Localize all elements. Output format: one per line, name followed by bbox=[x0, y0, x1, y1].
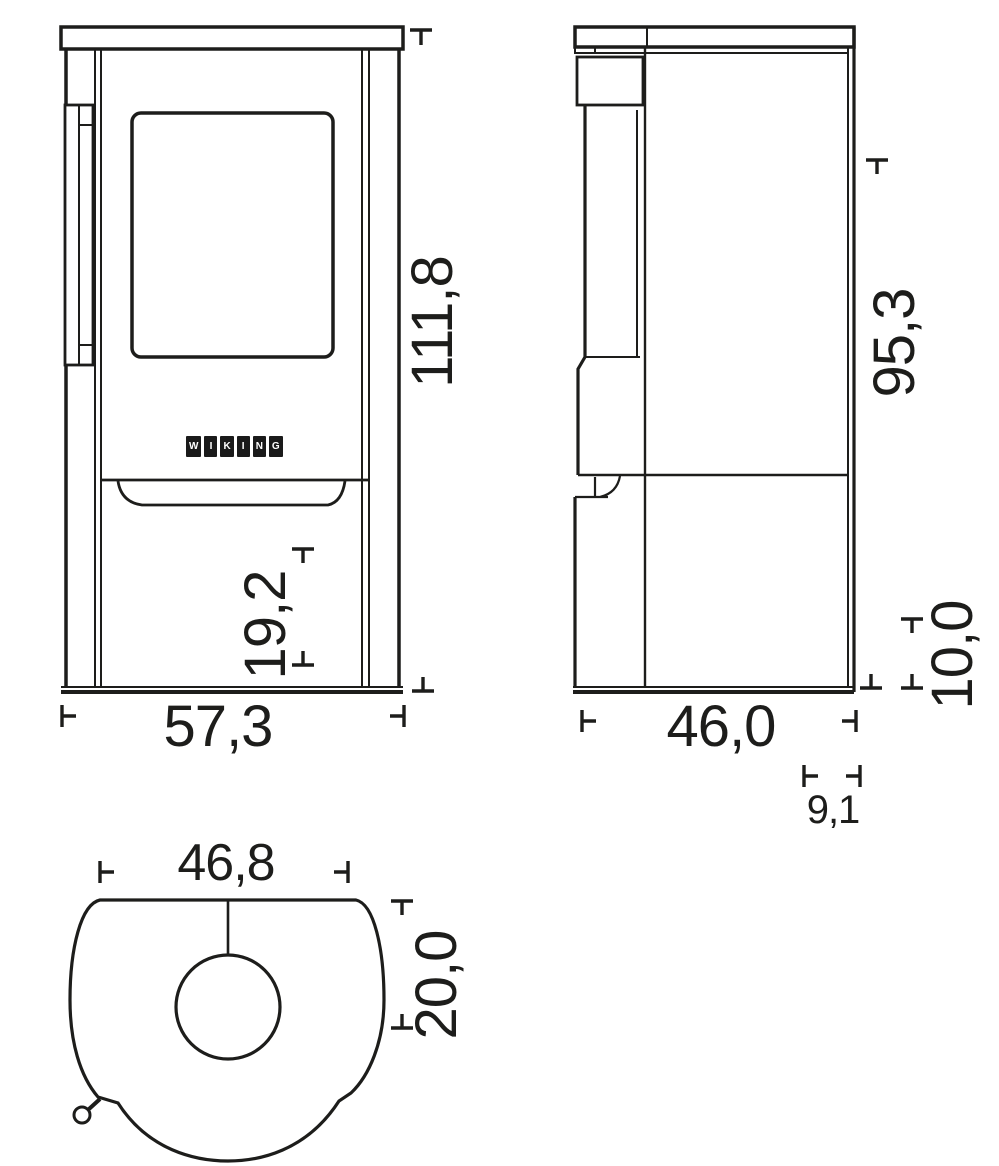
dimension-label-side-back-offset: 9,1 bbox=[807, 790, 860, 830]
wiking-logo: W I K I N G bbox=[186, 436, 283, 457]
front-top-plate bbox=[61, 27, 403, 49]
top-view-handle-stem bbox=[89, 1099, 100, 1109]
logo-letter: I bbox=[204, 436, 217, 457]
dimension-drawing-canvas: 111,8 57,3 19,2 95,3 46,0 10,0 9,1 46,8 … bbox=[0, 0, 999, 1166]
dimension-label-side-upper-height: 95,3 bbox=[866, 289, 924, 398]
dimension-label-top-flue-offset: 20,0 bbox=[408, 931, 466, 1040]
side-back-offset-ticks bbox=[804, 765, 860, 787]
dimension-label-front-height: 111,8 bbox=[404, 256, 462, 388]
side-handle-bracket bbox=[577, 57, 643, 105]
side-door-inner-edge bbox=[585, 110, 640, 357]
dimension-label-top-width: 46,8 bbox=[177, 837, 274, 889]
top-view-flue-outlet bbox=[176, 955, 280, 1059]
side-upper-height-ticks bbox=[860, 160, 888, 688]
logo-letter: W bbox=[186, 436, 201, 457]
top-view-drawing bbox=[70, 900, 384, 1161]
top-view-handle-knob bbox=[74, 1107, 90, 1123]
logo-letter: N bbox=[253, 436, 266, 457]
technical-drawing bbox=[0, 0, 999, 1166]
front-panel-seams bbox=[95, 50, 369, 687]
front-view-drawing bbox=[61, 27, 403, 692]
side-top-plate bbox=[575, 27, 854, 47]
logo-letter: G bbox=[269, 436, 283, 457]
side-handle-recess-profile bbox=[575, 476, 620, 497]
dimension-label-front-lower-height: 19,2 bbox=[237, 571, 295, 680]
side-view-drawing bbox=[573, 27, 854, 692]
front-door-glass-window bbox=[132, 113, 333, 357]
logo-letter: I bbox=[237, 436, 250, 457]
dimension-label-front-width: 57,3 bbox=[164, 698, 273, 756]
logo-letter: K bbox=[220, 436, 233, 457]
dimension-label-side-depth: 46,0 bbox=[667, 698, 776, 756]
dimension-label-side-base-height: 10,0 bbox=[924, 601, 982, 710]
front-handle-recess bbox=[118, 481, 345, 505]
side-door-front-edge bbox=[578, 105, 585, 475]
